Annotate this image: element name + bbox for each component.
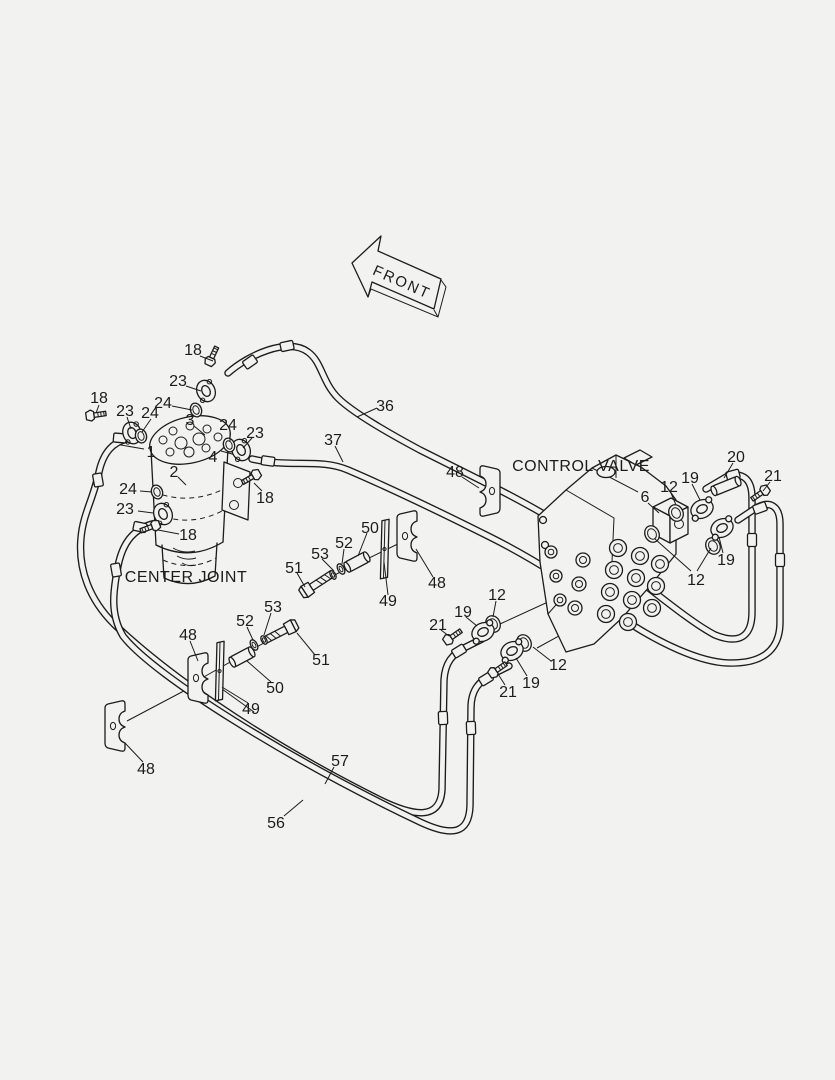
clamp-48 [480, 466, 500, 516]
callout-50: 50 [266, 680, 284, 697]
clamp-48 [105, 701, 125, 751]
callout-48: 48 [179, 627, 197, 644]
bolt-18 [85, 408, 106, 422]
callout-1: 1 [147, 444, 156, 461]
callout-23: 23 [246, 425, 264, 442]
callout-53: 53 [264, 599, 282, 616]
front-arrow: FRONT [352, 236, 446, 317]
callout-12: 12 [488, 587, 506, 604]
callout-23: 23 [169, 373, 187, 390]
callout-19: 19 [522, 675, 540, 692]
part-callouts: 18 23 24 3 18 23 24 1 24 23 4 2 24 23 18… [90, 342, 782, 832]
callout-50: 50 [361, 520, 379, 537]
hydraulic-piping-diagram: FRONT CENTER JOINT CONTROL VALVE 18 23 2… [0, 0, 835, 1080]
callout-24: 24 [119, 481, 137, 498]
callout-53: 53 [311, 546, 329, 563]
callout-12: 12 [549, 657, 567, 674]
callout-48: 48 [137, 761, 155, 778]
manual-diagram-page: FRONT CENTER JOINT CONTROL VALVE 18 23 2… [0, 0, 835, 1080]
callout-52: 52 [335, 535, 353, 552]
control-valve [538, 450, 676, 652]
callout-51: 51 [285, 560, 303, 577]
callout-57: 57 [331, 753, 349, 770]
callout-23: 23 [116, 403, 134, 420]
split-flange-19 [686, 495, 717, 522]
hose-57 [81, 438, 482, 813]
callout-19: 19 [454, 604, 472, 621]
flange-sleeve-23 [193, 377, 219, 405]
bolt-18 [203, 345, 221, 368]
callout-19: 19 [717, 552, 735, 569]
callout-6: 6 [641, 489, 650, 506]
callout-2: 2 [170, 464, 179, 481]
callout-48: 48 [428, 575, 446, 592]
callout-48: 48 [446, 464, 464, 481]
callout-37: 37 [324, 432, 342, 449]
callout-24: 24 [219, 417, 237, 434]
callout-21: 21 [499, 684, 517, 701]
callout-18: 18 [256, 490, 274, 507]
callout-56: 56 [267, 815, 285, 832]
callout-36: 36 [376, 398, 394, 415]
joint-side-flange [222, 462, 250, 520]
callout-20: 20 [727, 449, 745, 466]
callout-52: 52 [236, 613, 254, 630]
callout-3: 3 [186, 412, 195, 429]
spacer-50 [343, 551, 372, 573]
callout-49: 49 [242, 701, 260, 718]
callout-12: 12 [687, 572, 705, 589]
clamp-48 [397, 511, 417, 561]
callout-18: 18 [90, 390, 108, 407]
callout-18: 18 [184, 342, 202, 359]
center-joint-title: CENTER JOINT [125, 569, 247, 586]
callout-49: 49 [379, 593, 397, 610]
callout-51: 51 [312, 652, 330, 669]
callout-12: 12 [660, 479, 678, 496]
callout-21: 21 [429, 617, 447, 634]
control-valve-title: CONTROL VALVE [512, 458, 650, 475]
callout-18: 18 [179, 527, 197, 544]
hose-37 [252, 459, 780, 663]
callout-24: 24 [141, 405, 159, 422]
callout-19: 19 [681, 470, 699, 487]
callout-23: 23 [116, 501, 134, 518]
callout-4: 4 [209, 449, 218, 466]
callout-21: 21 [764, 468, 782, 485]
